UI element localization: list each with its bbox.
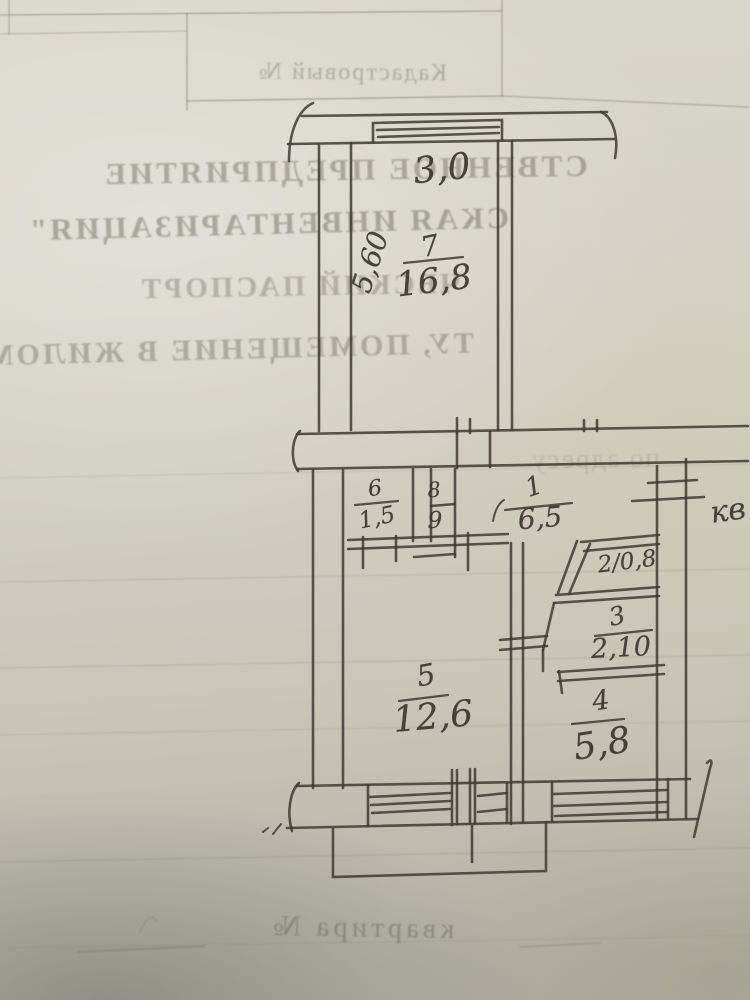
window-room7 (373, 120, 502, 142)
loggia (263, 822, 546, 877)
bottom-wall (287, 761, 711, 837)
duct9-number-label: 9 (428, 508, 443, 534)
middle-wall-band (293, 418, 748, 471)
margin-note-label: кв (708, 491, 748, 531)
stray-pen-flick (493, 500, 504, 521)
photographed-floorplan-sheet: Кадастровый № СТВЕННОЕ ПРЕДПРИЯТИЕ СКАЯ … (0, 0, 750, 1000)
hall1-area-label: 6,5 (516, 500, 563, 537)
balcony-width-label: 3,0 (411, 146, 472, 193)
duct8-number-label: 8 (426, 477, 441, 502)
room5-area-label: 12,6 (391, 693, 474, 741)
room3-area-label: 2,10 (590, 631, 652, 665)
room6-wall (348, 533, 508, 570)
